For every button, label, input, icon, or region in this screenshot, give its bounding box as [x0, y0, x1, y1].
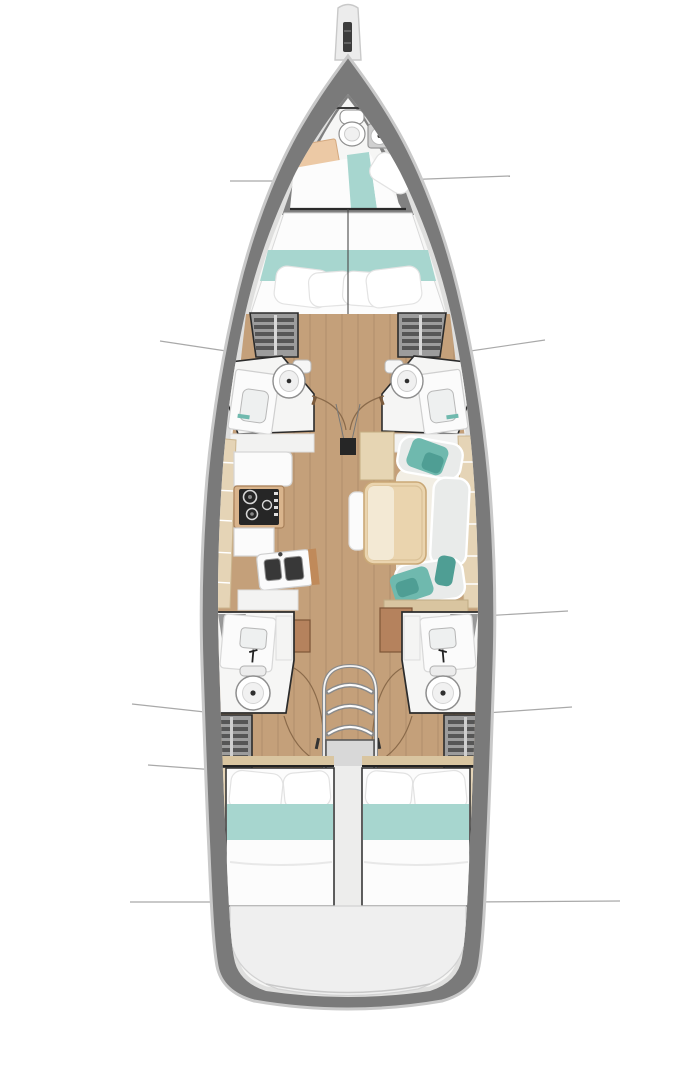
aft-cabins — [210, 756, 486, 906]
mast-foot — [340, 438, 356, 455]
swim-platform — [230, 906, 466, 996]
bowsprit — [335, 5, 361, 61]
starboard-aft-head-toilet — [426, 666, 460, 710]
starboard-forward-wardrobe — [398, 313, 446, 357]
port-berth-blanket — [227, 804, 333, 840]
galley-counter-mid — [234, 528, 274, 556]
port-forward-wardrobe-divider — [274, 315, 277, 355]
section-line-aft-port — [132, 704, 214, 713]
starboard-forward-wardrobe-divider — [419, 315, 422, 355]
port-sill — [230, 434, 314, 452]
saloon-sideboard — [360, 432, 394, 480]
engine-compartment — [334, 766, 362, 906]
galley-sink-unit — [256, 548, 319, 590]
section-line-aft-starboard — [486, 707, 572, 713]
port-forward-wardrobe — [250, 313, 298, 357]
starboard-aft-head-sink — [420, 614, 477, 672]
starboard-aft-berth — [362, 768, 470, 906]
starboard-aft-head-shelf — [404, 616, 420, 660]
galley-cabinet-aft — [238, 590, 298, 610]
saloon-table — [364, 482, 426, 564]
port-aft-berth — [226, 768, 334, 906]
anchor-roller — [343, 22, 352, 52]
deck-plan — [0, 0, 682, 1080]
port-cabin-sill — [214, 756, 334, 766]
section-line-stern-starboard — [466, 901, 620, 902]
starboard-cabin-sill — [362, 756, 482, 766]
starboard-forward-head-sink — [416, 369, 468, 435]
forward-head-toilet — [339, 110, 365, 146]
port-aft-head-toilet — [236, 666, 270, 710]
port-aft-head-sink — [220, 614, 277, 672]
interior-content — [208, 60, 488, 997]
galley-stove — [234, 486, 284, 528]
galley-counter-forward — [234, 452, 292, 486]
starboard-berth-blanket — [363, 804, 469, 840]
deck-plan-stage — [0, 0, 682, 1080]
port-aft-head-shelf — [276, 616, 292, 660]
port-forward-head-sink — [228, 369, 280, 435]
